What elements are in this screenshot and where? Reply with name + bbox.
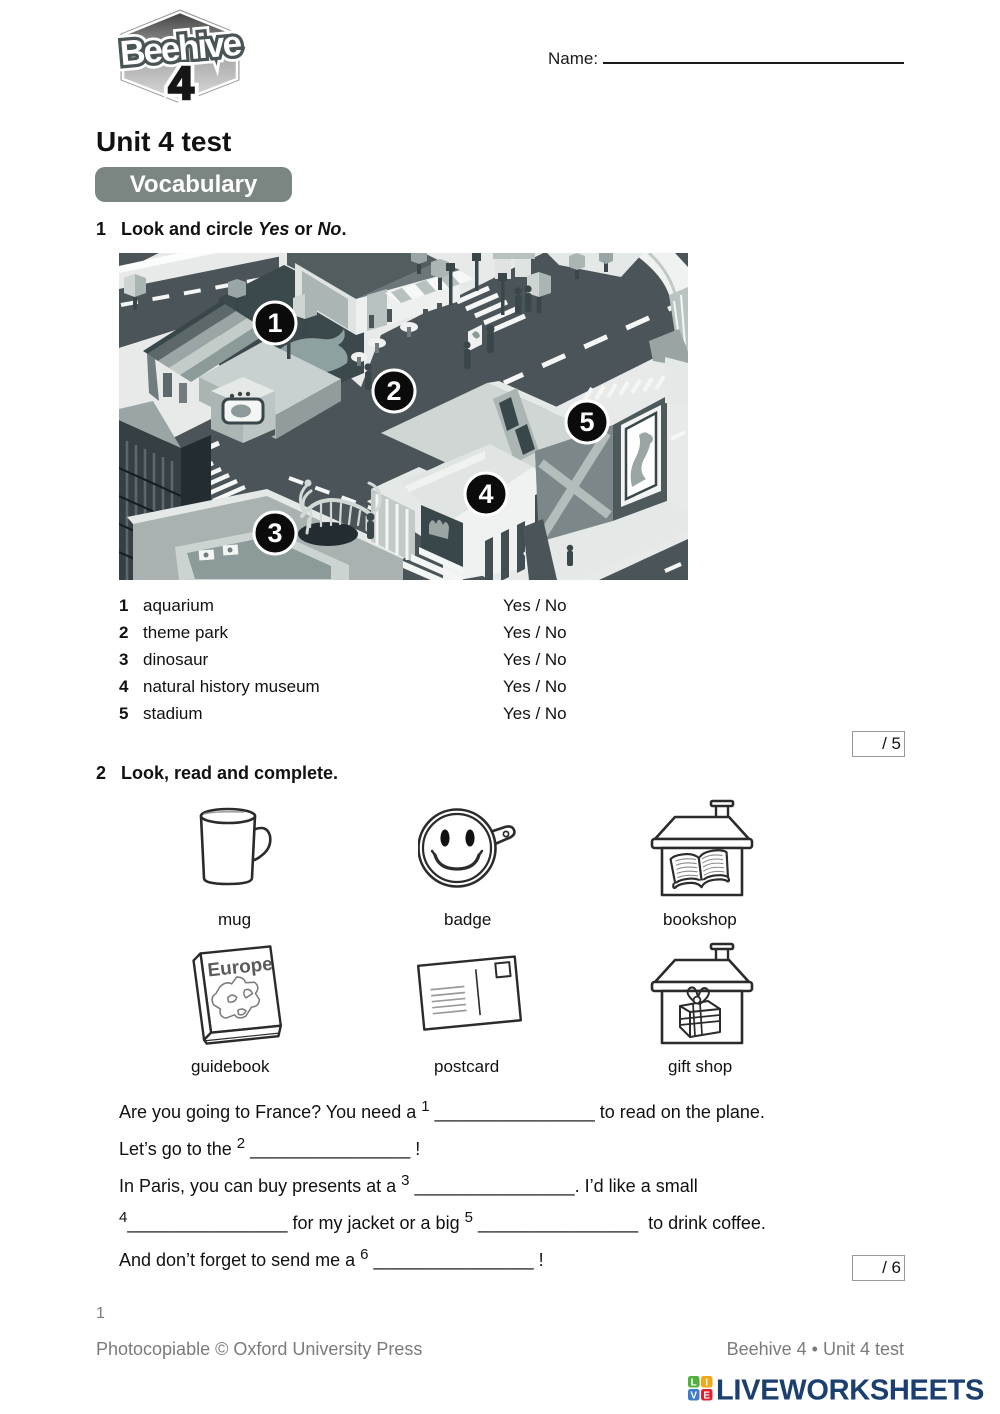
svg-text:5: 5 bbox=[579, 407, 594, 437]
svg-text:E: E bbox=[703, 1390, 710, 1401]
svg-text:L: L bbox=[691, 1377, 697, 1388]
svg-text:I: I bbox=[705, 1377, 708, 1388]
svg-text:1: 1 bbox=[267, 308, 282, 338]
svg-text:4: 4 bbox=[168, 57, 194, 104]
svg-text:2: 2 bbox=[386, 376, 401, 406]
svg-text:4: 4 bbox=[478, 479, 493, 509]
svg-text:V: V bbox=[690, 1390, 697, 1401]
svg-text:3: 3 bbox=[267, 518, 282, 548]
svg-text:LIVEWORKSHEETS: LIVEWORKSHEETS bbox=[716, 1375, 984, 1403]
